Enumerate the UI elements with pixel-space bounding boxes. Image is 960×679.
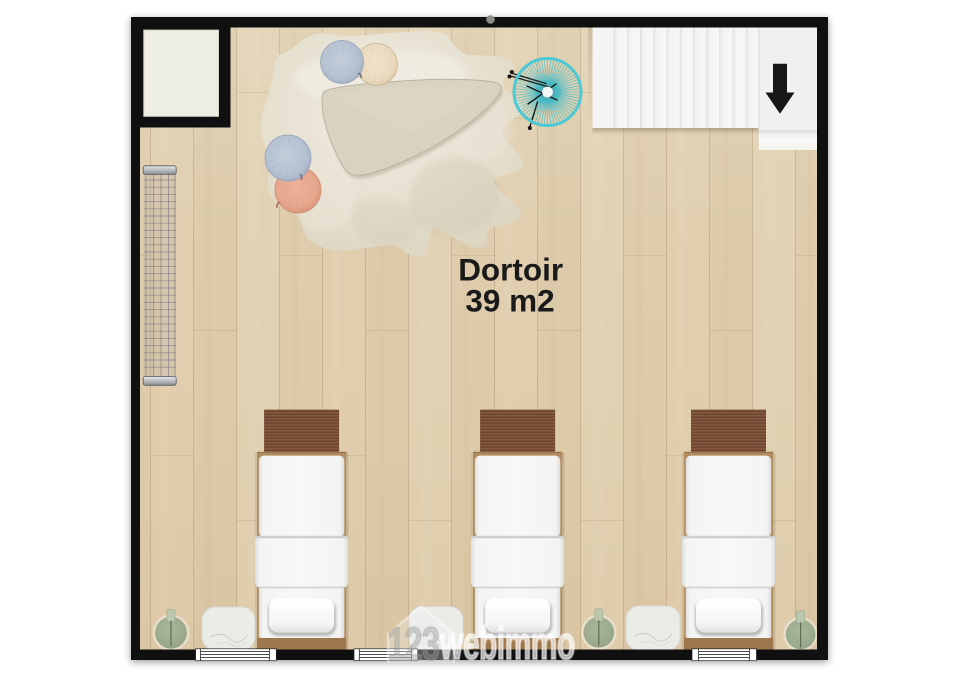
svg-text:webimmo: webimmo <box>439 619 575 670</box>
svg-text:39 m2: 39 m2 <box>465 283 554 319</box>
svg-text:123: 123 <box>387 617 440 670</box>
